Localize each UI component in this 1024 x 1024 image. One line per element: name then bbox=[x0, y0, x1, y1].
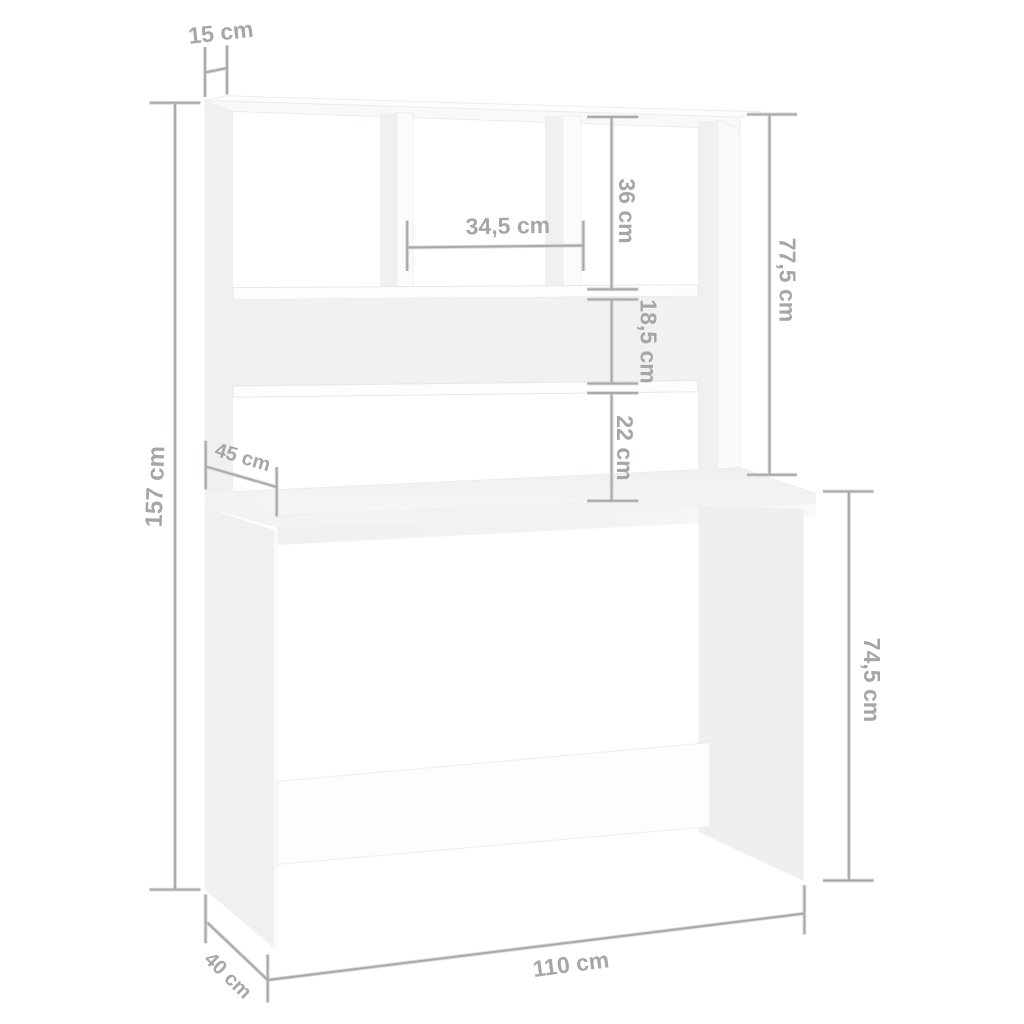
svg-text:22 cm: 22 cm bbox=[612, 415, 638, 480]
svg-text:157 cm: 157 cm bbox=[141, 446, 171, 528]
svg-text:36 cm: 36 cm bbox=[614, 178, 640, 243]
svg-text:74,5 cm: 74,5 cm bbox=[859, 638, 885, 722]
svg-text:18,5 cm: 18,5 cm bbox=[635, 299, 661, 383]
svg-text:34,5 cm: 34,5 cm bbox=[465, 212, 550, 239]
svg-text:77,5 cm: 77,5 cm bbox=[774, 238, 800, 322]
